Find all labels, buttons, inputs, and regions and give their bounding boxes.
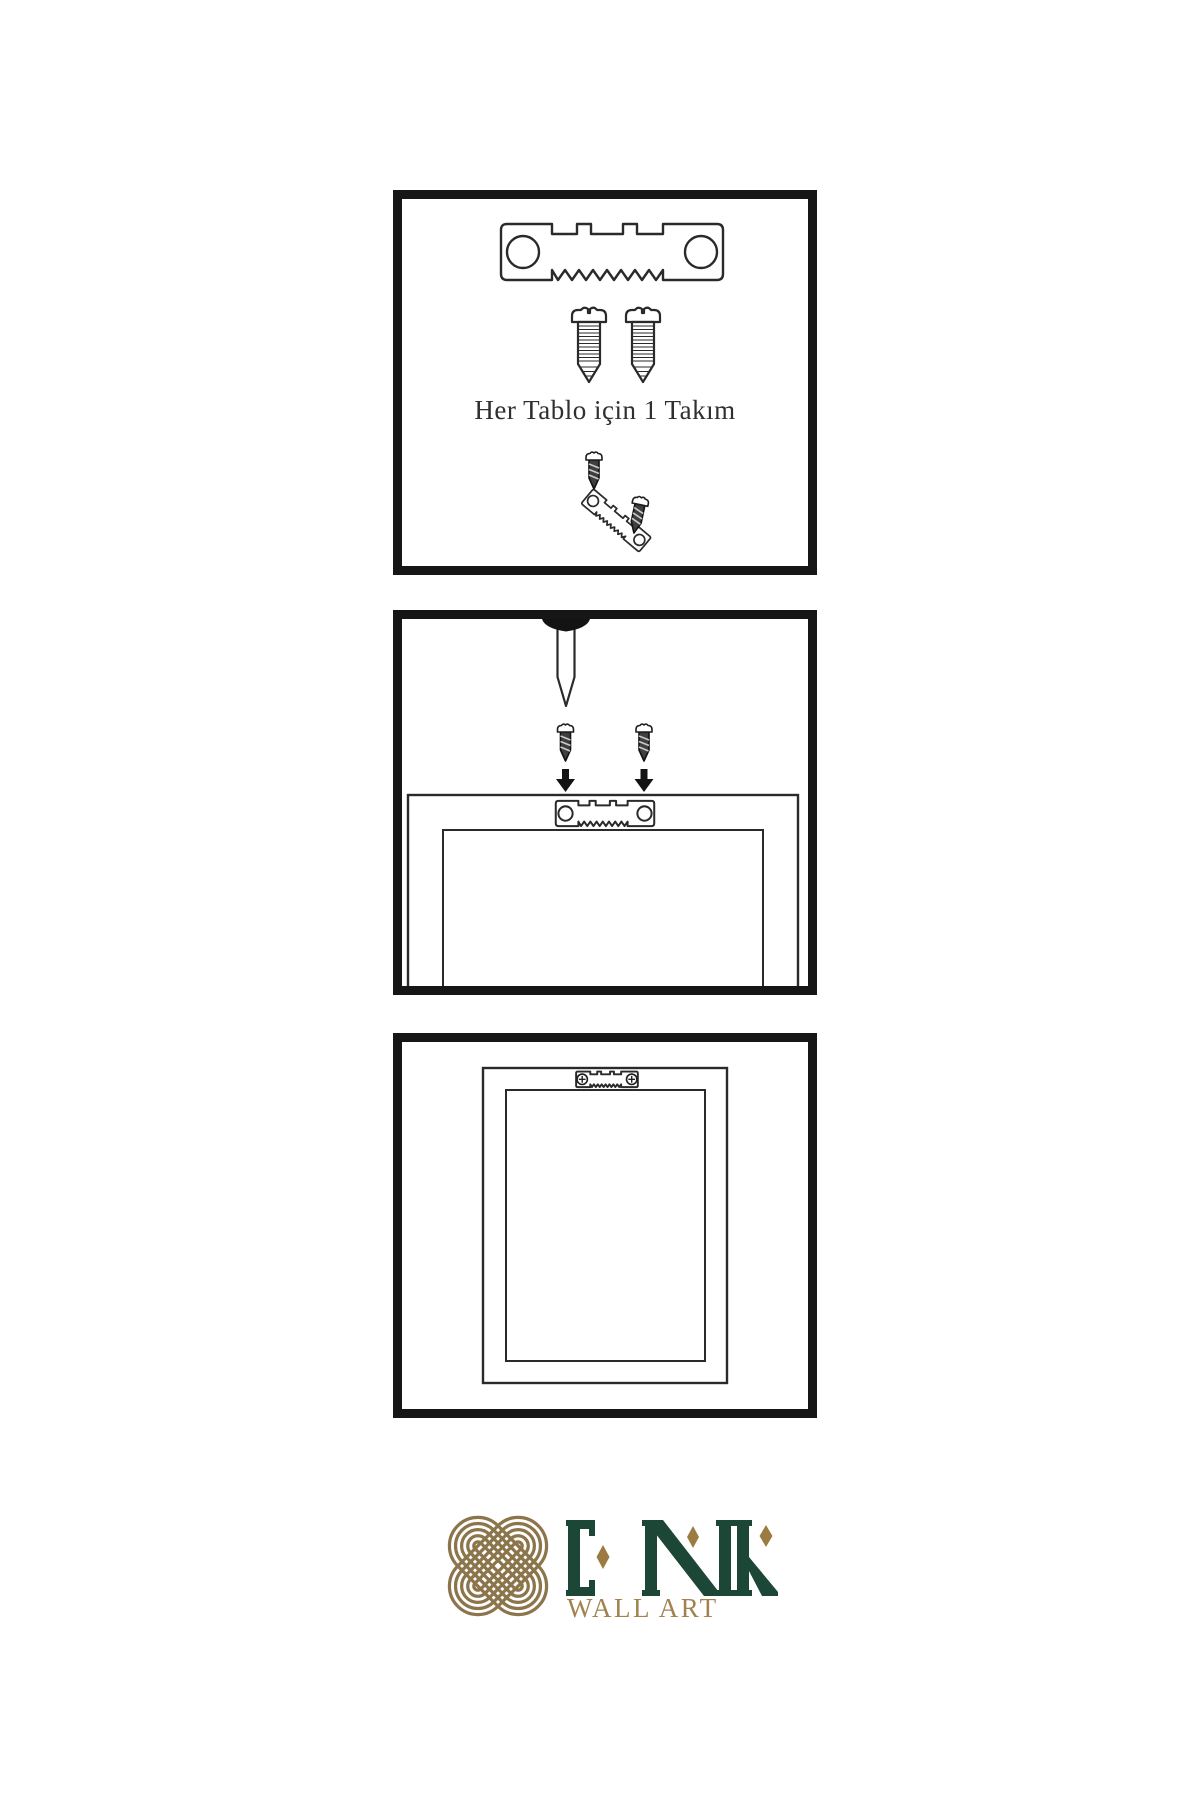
dark-screw-icon xyxy=(586,452,602,489)
step-3-panel xyxy=(393,1033,817,1418)
picture-frame-icon xyxy=(483,1068,727,1383)
instruction-sheet: Her Tablo için 1 Takım xyxy=(0,0,1200,1800)
knot-logo-icon xyxy=(435,1501,561,1631)
letter-n xyxy=(642,1520,734,1596)
hardware-kit-illustration xyxy=(402,199,808,566)
phillips-screw-icon xyxy=(627,1074,637,1084)
dark-screw-icon xyxy=(636,724,652,761)
mounted-hanger-icon xyxy=(556,801,654,826)
step-1-caption: Her Tablo için 1 Takım xyxy=(402,395,808,426)
nail-icon xyxy=(542,619,590,706)
step-2-panel xyxy=(393,610,817,995)
frame-back-icon xyxy=(408,795,798,986)
arrow-down-icon xyxy=(556,769,575,792)
screw-hanger-assembly-icon xyxy=(581,452,651,552)
letter-e xyxy=(566,1520,610,1596)
hung-frame-illustration xyxy=(402,1042,808,1409)
brand-name-text: ENK xyxy=(0,0,1,1)
phillips-screw-icon xyxy=(577,1074,587,1084)
brand-tagline: WALL ART xyxy=(567,1593,797,1624)
arrow-down-icon xyxy=(635,769,654,792)
dark-screw-icon xyxy=(558,724,574,761)
sawtooth-hanger-icon xyxy=(501,224,723,280)
screw-icon xyxy=(572,308,606,382)
screw-icon xyxy=(626,308,660,382)
letter-k xyxy=(734,1520,778,1596)
brand-logotype: ENK xyxy=(566,1517,781,1601)
mounting-step-illustration xyxy=(402,619,808,986)
step-1-panel: Her Tablo için 1 Takım xyxy=(393,190,817,575)
